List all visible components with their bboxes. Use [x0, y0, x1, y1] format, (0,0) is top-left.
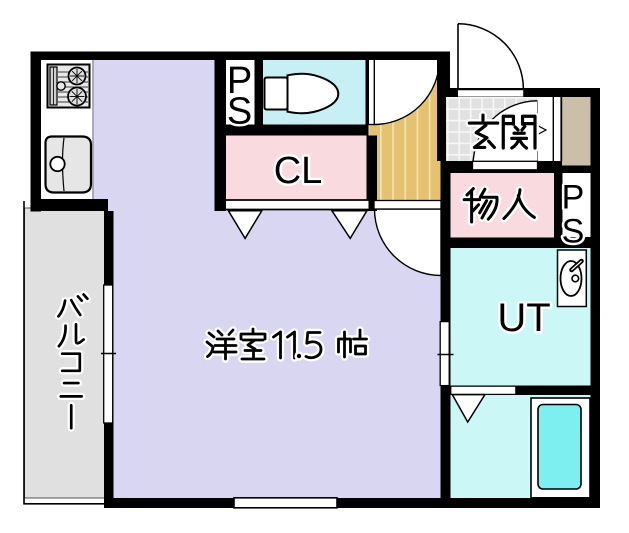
svg-text:S: S: [227, 91, 252, 133]
svg-text:UT: UT: [497, 296, 550, 340]
svg-text:P: P: [562, 179, 585, 217]
svg-text:S: S: [562, 213, 585, 251]
svg-text:CL: CL: [274, 150, 323, 192]
